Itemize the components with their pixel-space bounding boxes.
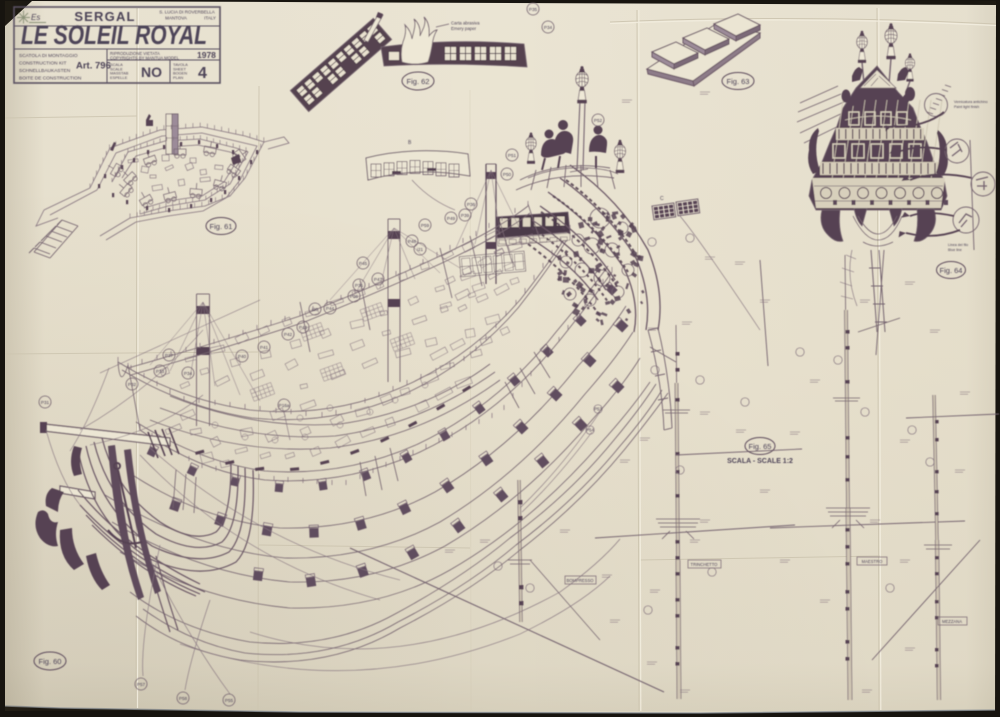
svg-text:SCATOLA DI MONTAGGIO: SCATOLA DI MONTAGGIO	[19, 53, 78, 59]
svg-text:LE SOLEIL ROYAL: LE SOLEIL ROYAL	[21, 20, 207, 50]
svg-text:i20: i20	[312, 307, 319, 312]
svg-text:P33: P33	[156, 369, 165, 374]
svg-text:MAESTRO: MAESTRO	[862, 559, 883, 564]
svg-text:P36: P36	[350, 294, 359, 299]
svg-text:Fig. 65: Fig. 65	[749, 442, 772, 451]
svg-text:P40: P40	[238, 354, 247, 359]
svg-text:P43: P43	[299, 325, 308, 330]
svg-text:Blue line: Blue line	[948, 248, 962, 252]
svg-text:P35: P35	[529, 7, 538, 12]
svg-text:S. LUCIA DI ROVERBELLA: S. LUCIA DI ROVERBELLA	[159, 10, 215, 15]
svg-text:COPYRIGHTS BY MANTUA MODEL: COPYRIGHTS BY MANTUA MODEL	[110, 56, 180, 61]
svg-text:P57: P57	[137, 682, 146, 687]
svg-text:P16a: P16a	[279, 403, 290, 408]
svg-text:P49: P49	[447, 216, 456, 221]
svg-text:ESPELLE: ESPELLE	[110, 75, 128, 80]
svg-text:P44: P44	[326, 306, 335, 311]
svg-text:C: C	[660, 196, 664, 202]
svg-text:PLAN: PLAN	[173, 75, 183, 80]
svg-text:SCHNELLBAUKASTEN: SCHNELLBAUKASTEN	[19, 68, 71, 74]
svg-text:Fig. 63: Fig. 63	[727, 77, 750, 86]
svg-text:P32: P32	[128, 382, 137, 387]
svg-text:P39: P39	[461, 213, 470, 218]
svg-text:P31: P31	[41, 400, 50, 405]
svg-text:P34: P34	[544, 25, 553, 30]
svg-text:P47: P47	[374, 277, 383, 282]
svg-text:P45: P45	[359, 261, 368, 266]
svg-text:BOITE DE CONSTRUCTION: BOITE DE CONSTRUCTION	[19, 76, 82, 82]
svg-text:Fig. 62: Fig. 62	[407, 77, 430, 86]
svg-text:P41: P41	[260, 345, 269, 350]
svg-text:P51: P51	[508, 153, 517, 158]
svg-text:P55: P55	[225, 698, 234, 703]
svg-text:MEZZANA: MEZZANA	[942, 619, 962, 624]
svg-text:P37: P37	[165, 353, 174, 358]
svg-text:Vernicatura antichino: Vernicatura antichino	[954, 100, 988, 104]
svg-text:TRINCHETTO: TRINCHETTO	[691, 562, 719, 567]
svg-text:P48: P48	[408, 239, 417, 244]
svg-text:P59: P59	[421, 223, 430, 228]
svg-text:Art. 796: Art. 796	[76, 61, 111, 72]
svg-text:Fig. 60: Fig. 60	[39, 657, 62, 666]
svg-text:Emery paper: Emery paper	[451, 26, 477, 31]
svg-text:4: 4	[198, 65, 207, 82]
svg-text:P52: P52	[594, 118, 603, 123]
svg-text:P36: P36	[467, 202, 476, 207]
svg-text:Linea del filo: Linea del filo	[948, 243, 968, 247]
svg-text:NO: NO	[141, 64, 162, 80]
svg-text:P34: P34	[184, 371, 193, 376]
svg-text:i21: i21	[417, 247, 424, 252]
svg-text:Fig. 64: Fig. 64	[940, 266, 963, 275]
svg-text:P42: P42	[284, 332, 293, 337]
svg-text:CONSTRUCTION KIT: CONSTRUCTION KIT	[19, 61, 67, 67]
svg-text:P58: P58	[179, 696, 188, 701]
svg-text:P35: P35	[355, 283, 364, 288]
svg-text:Fig. 61: Fig. 61	[210, 222, 233, 231]
svg-text:SCALA - SCALE 1:2: SCALA - SCALE 1:2	[727, 458, 793, 465]
svg-text:Paint light finish: Paint light finish	[954, 105, 979, 109]
svg-text:Carta abrasiva: Carta abrasiva	[451, 21, 480, 26]
svg-text:P50: P50	[503, 172, 512, 177]
svg-text:BOMPRESSO: BOMPRESSO	[567, 578, 595, 583]
svg-text:1978: 1978	[197, 50, 216, 60]
